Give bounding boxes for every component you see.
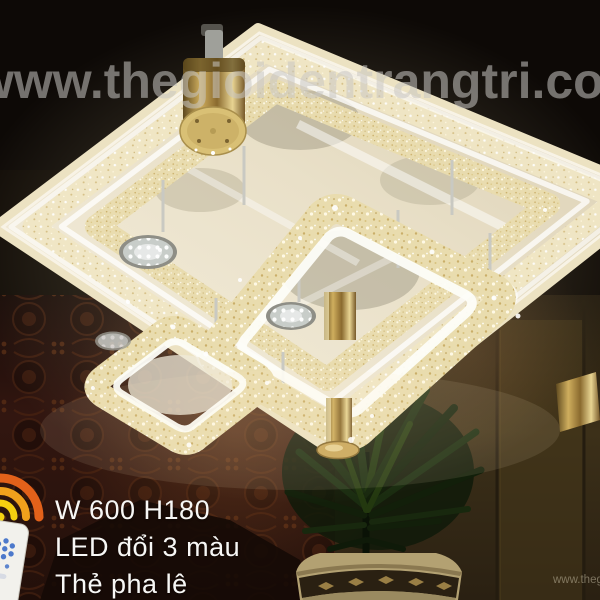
led-spotlight-2: [266, 302, 316, 330]
watermark-corner: www.thegioidentrangtri.com: [553, 574, 600, 586]
plant-pot: [296, 553, 462, 600]
led-spotlight-1: [119, 235, 177, 269]
product-photo: www.thegioidentrangtri.com W 600 H180 LE…: [0, 0, 600, 600]
product-size-text: W 600 H180: [55, 492, 240, 529]
underside-glow: [40, 370, 560, 490]
product-led-text: LED đổi 3 màu: [55, 529, 240, 566]
product-info: W 600 H180 LED đổi 3 màu Thẻ pha lê: [55, 492, 240, 600]
product-material-text: Thẻ pha lê: [55, 566, 240, 600]
led-spotlight-3: [95, 332, 131, 351]
gold-center-block: [324, 292, 356, 340]
